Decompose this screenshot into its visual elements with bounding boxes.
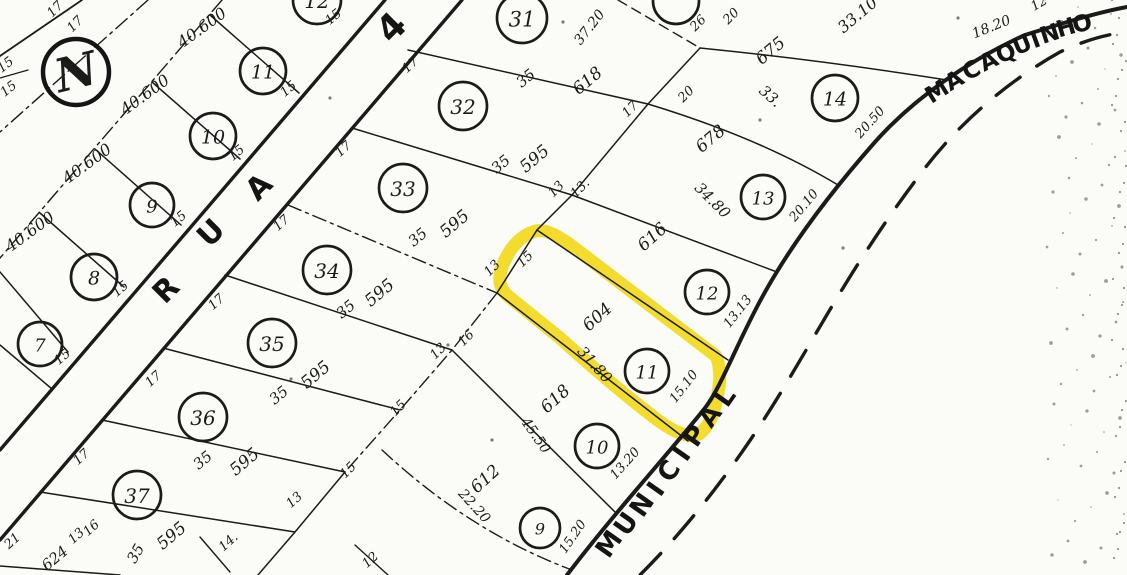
lot-number: 12 [696, 283, 719, 304]
noise-dot [1112, 278, 1114, 280]
noise-dot [1124, 121, 1126, 123]
noise-dot [490, 438, 493, 441]
noise-dot [1122, 243, 1124, 245]
noise-dot [1089, 294, 1091, 296]
noise-dot [1084, 197, 1088, 201]
lot-number: 8 [88, 268, 100, 290]
noise-dot [1055, 75, 1057, 77]
noise-dot [446, 343, 449, 346]
lot-number: 34 [314, 259, 339, 283]
noise-dot [1120, 470, 1122, 472]
lot-number: 32 [450, 95, 475, 119]
noise-dot [1121, 69, 1123, 71]
lot-number: 9 [535, 520, 545, 539]
noise-dot [1099, 546, 1102, 549]
noise-dot [1121, 409, 1123, 411]
noise-dot [1124, 461, 1126, 463]
lot-number: 36 [190, 406, 216, 430]
noise-dot [1112, 471, 1115, 474]
noise-dot [1118, 487, 1120, 489]
noise-dot [1057, 499, 1058, 500]
lot-number: 13 [752, 188, 775, 209]
cadastral-map: 1211109873132333435363714131211109 17171… [0, 0, 1127, 575]
noise-dot [289, 377, 292, 380]
noise-dot [1114, 496, 1116, 498]
noise-dot [1076, 369, 1078, 371]
noise-dot [1123, 287, 1125, 289]
lot-number: 11 [251, 62, 275, 84]
noise-dot [1108, 164, 1110, 166]
noise-dot [1064, 115, 1067, 118]
noise-dot [1047, 458, 1049, 460]
noise-dot [1122, 348, 1124, 350]
noise-dot [1091, 354, 1095, 358]
noise-dot [1083, 560, 1087, 564]
noise-dot [328, 96, 331, 99]
noise-dot [1113, 557, 1115, 559]
lot-number: 14 [823, 89, 847, 111]
lot-number: 37 [124, 484, 150, 508]
noise-dot [1123, 513, 1125, 515]
lot-number: 10 [201, 127, 225, 149]
noise-dot [1115, 321, 1118, 324]
noise-dot [1116, 374, 1118, 376]
noise-dot [1082, 314, 1084, 316]
noise-dot [1101, 184, 1104, 187]
noise-dot [1111, 104, 1113, 106]
lot-number: 35 [259, 332, 284, 356]
noise-dot [1050, 553, 1053, 556]
noise-dot [1063, 444, 1065, 446]
lot-number: 9 [146, 196, 157, 217]
noise-dot [1118, 17, 1120, 19]
noise-dot [1119, 191, 1121, 193]
lot-number: 12 [304, 0, 329, 13]
noise-dot [1091, 143, 1092, 144]
noise-dot [1122, 301, 1124, 303]
noise-dot [1094, 27, 1097, 30]
noise-dot [956, 16, 959, 19]
noise-dot [1115, 435, 1117, 437]
noise-dot [1123, 182, 1125, 184]
lot-number: 33 [390, 177, 415, 201]
noise-dot [841, 246, 844, 249]
noise-dot [1123, 522, 1125, 524]
noise-dot [1110, 13, 1112, 15]
noise-dot [1075, 157, 1077, 159]
noise-dot [1125, 362, 1126, 363]
noise-dot [1116, 34, 1118, 36]
noise-dot [1070, 424, 1071, 425]
noise-dot [1051, 190, 1054, 193]
noise-dot [1117, 548, 1119, 550]
noise-dot [1103, 431, 1105, 433]
lot-number: 10 [586, 437, 609, 458]
noise-dot [1085, 409, 1088, 412]
noise-dot [1117, 313, 1119, 315]
noise-dot [1097, 122, 1101, 126]
noise-dot [1111, 225, 1113, 227]
noise-dot [1114, 109, 1117, 112]
noise-dot [1113, 217, 1115, 219]
noise-dot [1119, 53, 1122, 56]
noise-dot [1074, 520, 1076, 522]
noise-dot [1080, 465, 1083, 468]
noise-dot [1118, 416, 1122, 420]
noise-dot [561, 20, 564, 23]
noise-dot [1066, 328, 1069, 331]
noise-dot [1097, 88, 1099, 90]
noise-dot [1060, 383, 1062, 385]
noise-dot [1046, 246, 1049, 249]
noise-dot [758, 118, 761, 121]
noise-dot [1071, 272, 1075, 276]
lot-number: 31 [509, 7, 536, 31]
noise-dot [1111, 339, 1113, 341]
noise-dot [1095, 239, 1097, 241]
noise-dot [1068, 177, 1071, 180]
noise-dot [1069, 212, 1070, 213]
noise-dot [1090, 506, 1092, 508]
noise-dot [1124, 226, 1126, 228]
lot-number: 11 [636, 362, 659, 383]
noise-dot [1112, 43, 1114, 45]
noise-dot [1098, 334, 1101, 337]
noise-dot [1115, 95, 1117, 97]
noise-dot [1067, 540, 1070, 543]
noise-dot [1061, 20, 1063, 22]
noise-dot [1077, 6, 1079, 8]
plat-map-scan: 1211109873132333435363714131211109 17171… [0, 0, 1127, 575]
noise-dot [1119, 531, 1121, 533]
noise-dot [1057, 135, 1061, 139]
noise-dot [1053, 403, 1056, 406]
noise-dot [1119, 426, 1121, 428]
noise-dot [1086, 46, 1089, 49]
noise-dot [1045, 34, 1048, 37]
noise-dot [1105, 491, 1109, 495]
noise-dot [1104, 68, 1105, 69]
lot-number: 7 [34, 335, 46, 356]
noise-dot [1093, 390, 1096, 393]
noise-dot [1120, 365, 1122, 367]
noise-dot [1079, 253, 1082, 256]
noise-dot [1062, 232, 1064, 234]
noise-dot [1109, 376, 1111, 378]
noise-dot [1081, 102, 1084, 105]
noise-dot [1117, 204, 1121, 208]
noise-dot [1056, 287, 1057, 288]
noise-dot [1096, 451, 1098, 453]
noise-dot [1121, 304, 1123, 306]
noise-dot [1049, 341, 1053, 345]
noise-dot [1048, 95, 1050, 97]
noise-dot [1116, 533, 1118, 535]
noise-dot [1070, 60, 1074, 64]
noise-dot [1120, 130, 1122, 132]
noise-dot [1117, 78, 1119, 80]
noise-dot [1104, 279, 1108, 283]
noise-dot [1114, 156, 1116, 158]
noise-dot [1124, 150, 1126, 152]
noise-dot [1122, 8, 1124, 10]
noise-dot [1120, 265, 1123, 268]
noise-dot [1118, 252, 1120, 254]
